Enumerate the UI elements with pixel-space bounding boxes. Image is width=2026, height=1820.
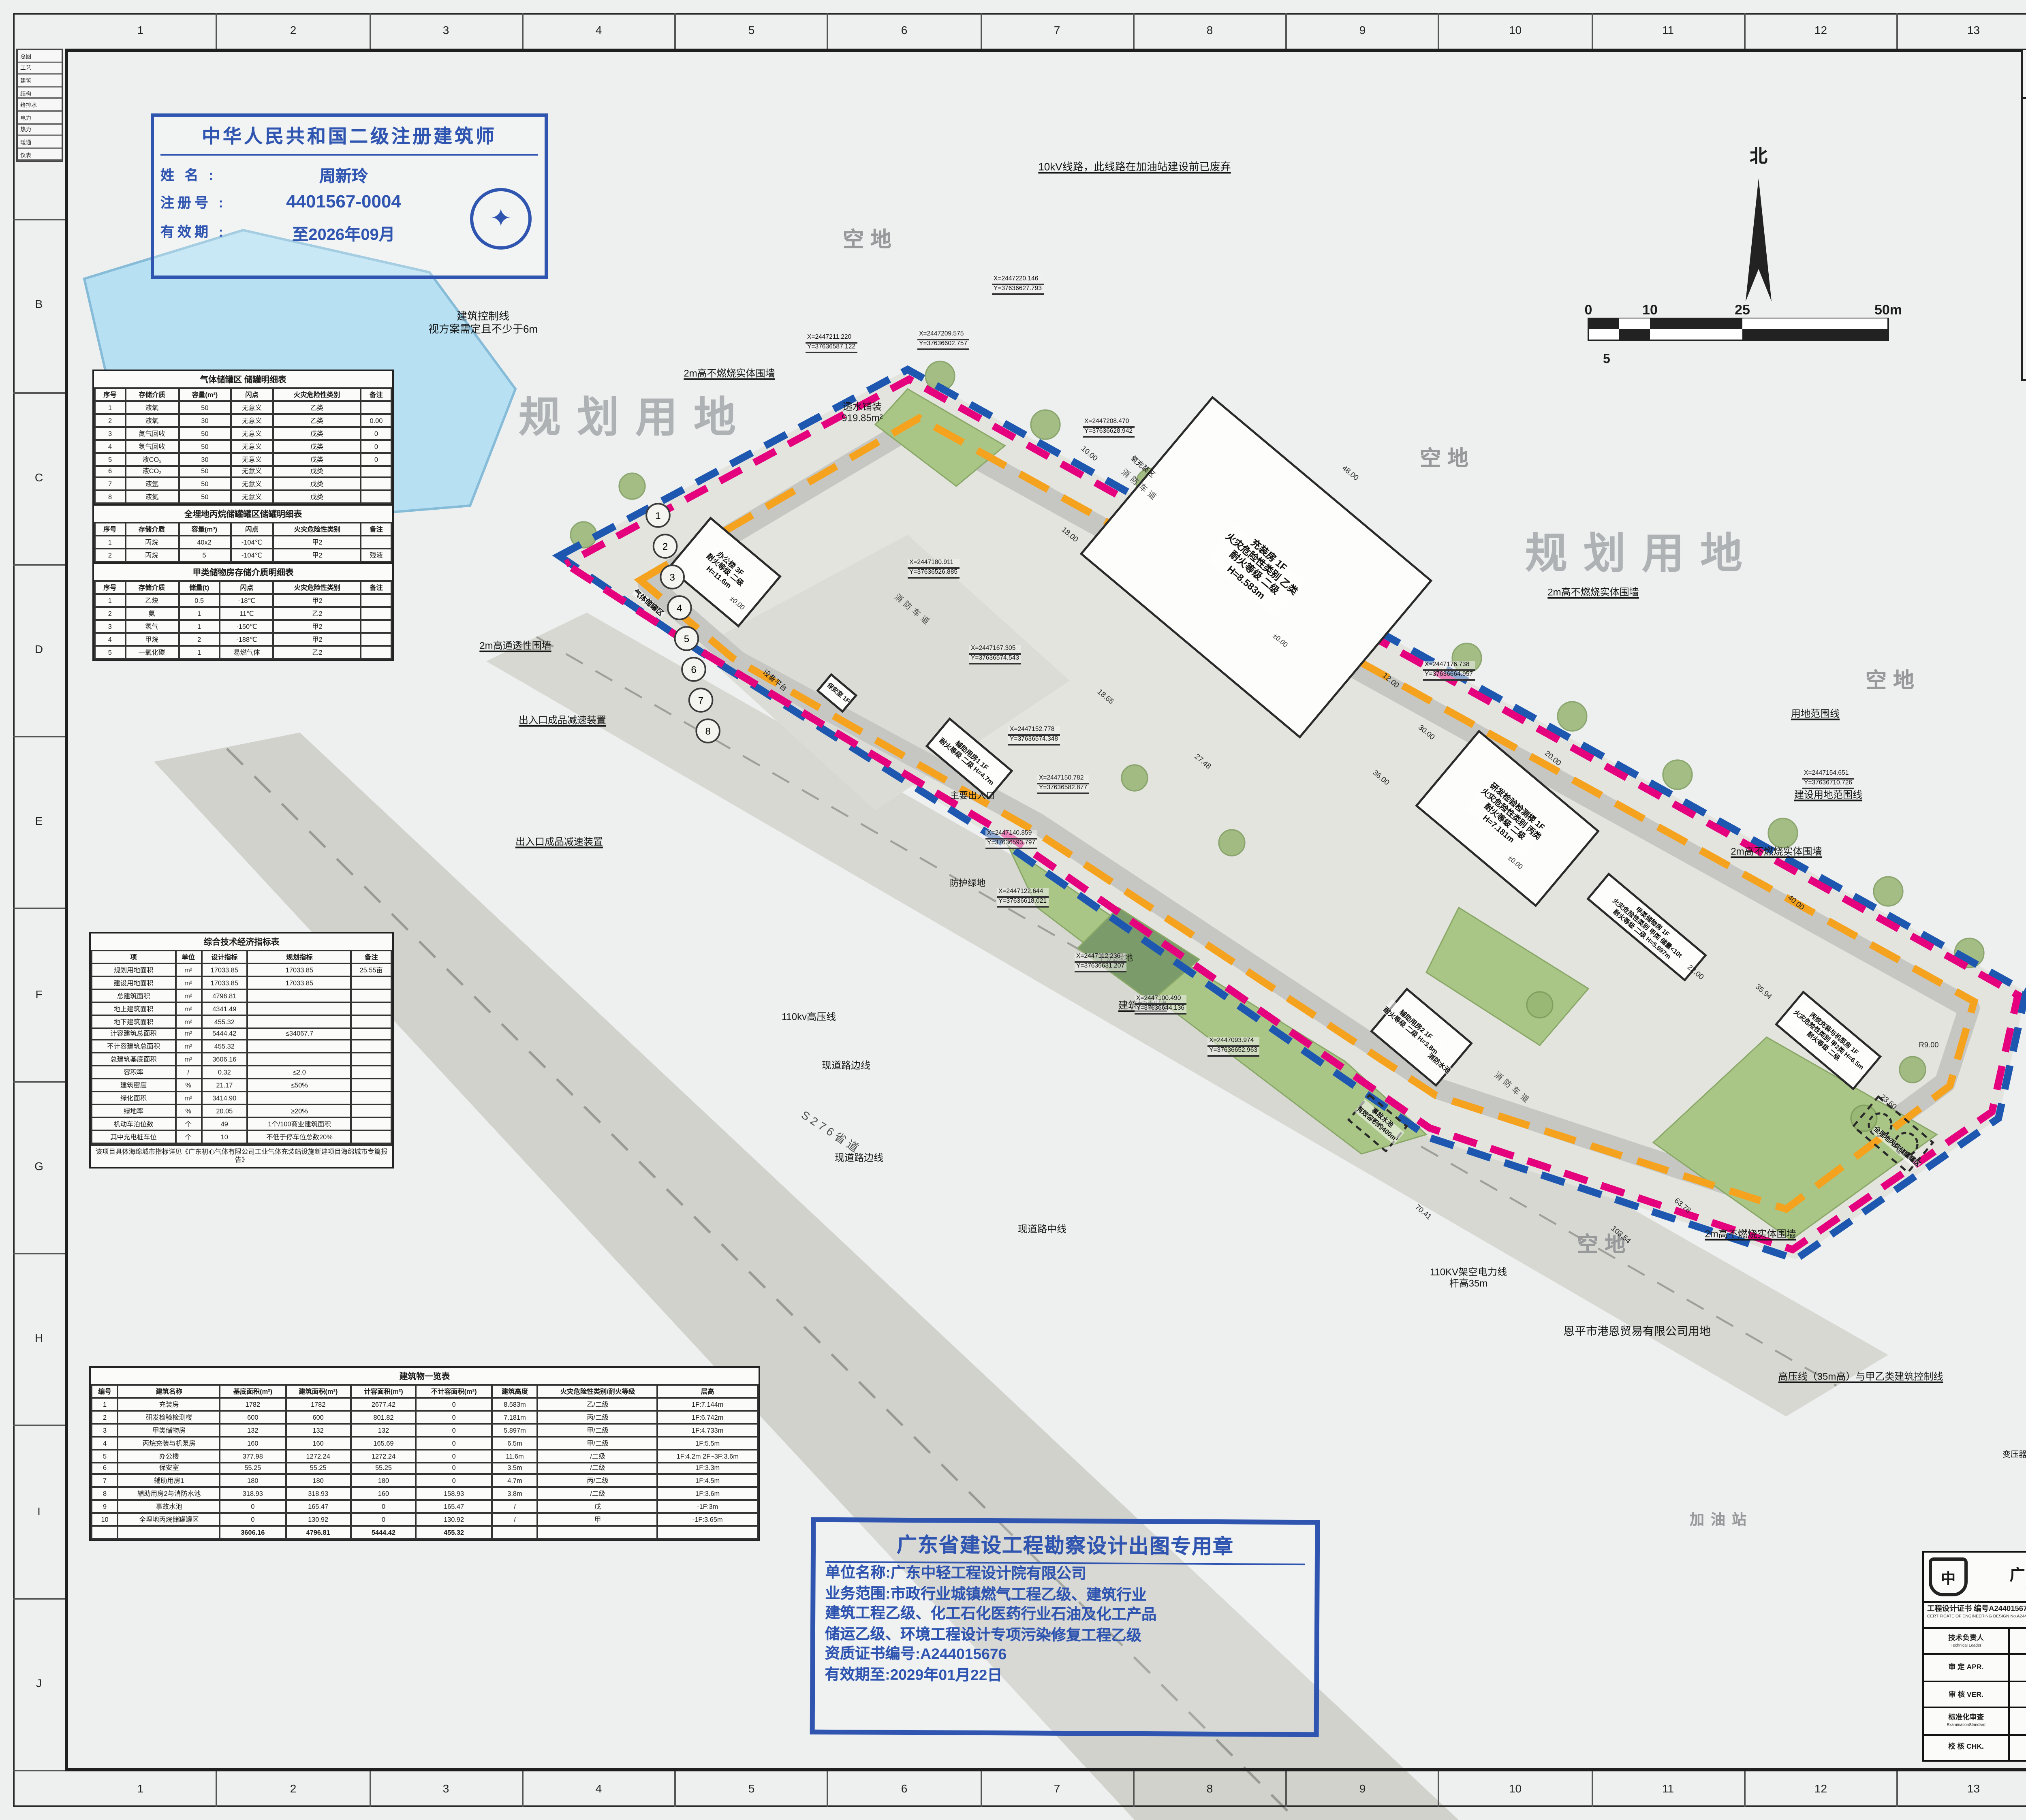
column-header: 火灾危险性类别 [273, 389, 361, 402]
table-cell: 10 [201, 1130, 248, 1143]
table-row: 2氨111℃乙2 [95, 607, 391, 620]
grid-column-label: 4 [523, 13, 676, 49]
column-header: 闪点 [231, 389, 273, 402]
table-cell: / [175, 1066, 201, 1079]
table-cell: 10 [92, 1513, 118, 1526]
table-cell [361, 645, 391, 658]
table-cell: 3606.16 [220, 1526, 285, 1539]
table-cell: m² [175, 1002, 201, 1015]
table-cell: 办公楼 [118, 1449, 220, 1462]
table-cell: 0 [220, 1500, 285, 1513]
table-cell: 132 [286, 1423, 351, 1436]
column-header: 计容面积(m²) [351, 1385, 416, 1398]
table-row: 6保安室55.2555.2555.2503.5m/二级1F:3.3m [92, 1462, 758, 1475]
table-cell: 17033.85 [248, 963, 351, 976]
table-cell: -150℃ [220, 619, 273, 632]
table-cell: 1F:4.733m [657, 1423, 758, 1436]
scale-tick: 25 [1735, 301, 1750, 318]
location-inset-map: 地块位置 地块位置规划三路规划二路S276省道规划一路安马陶瓷有限公司变电站煤气… [2021, 49, 2026, 381]
table-cell: 40x2 [178, 536, 230, 549]
table-cell: 1F:4.2m 2F~3F:3.6m [657, 1449, 758, 1462]
discipline-item: 结构 [18, 87, 62, 99]
table-cell: 8 [92, 1487, 118, 1500]
table-cell: 5 [95, 453, 125, 466]
table-cell: 乙/二级 [538, 1398, 658, 1411]
table-cell: 5.897m [492, 1423, 538, 1436]
role-label-en: ExaminationStandard [1947, 1724, 1985, 1728]
table-cell: 不低于停车位总数20% [248, 1130, 351, 1143]
class-a-storage-table: 甲类储物房存储介质明细表序号存储介质储量(t)闪点火灾危险性类别备注1乙炔0.5… [92, 562, 394, 660]
table-cell: 7 [92, 1475, 118, 1488]
table-header-row: 序号存储介质容量(m³)闪点火灾危险性类别备注 [95, 523, 391, 536]
grid-column-label: 4 [523, 1771, 676, 1807]
grid-column-label: 7 [981, 13, 1134, 49]
scale-bar: 0102550m 5 [1580, 301, 1904, 366]
role-label-en: Technical Leader [1951, 1644, 1981, 1649]
grid-column-label: 2 [218, 1771, 370, 1807]
table-cell: 50 [179, 427, 231, 440]
column-header: 建筑名称 [118, 1385, 220, 1398]
scale-tick: 0 [1585, 301, 1592, 318]
table-cell: 3414.90 [201, 1092, 248, 1104]
column-header: 不计容面积(m²) [416, 1385, 492, 1398]
grid-column-label: 12 [1745, 1771, 1898, 1807]
cert-cn: 工程设计证书 编号A244015676 [1927, 1604, 2026, 1614]
table-cell: 30 [179, 414, 231, 427]
table-cell: / [492, 1513, 538, 1526]
table-cell: 132 [220, 1423, 285, 1436]
table-cell: 318.93 [220, 1487, 285, 1500]
table-cell: 乙炔 [125, 594, 178, 607]
discipline-item: 电力 [18, 112, 62, 124]
table-cell: ≥20% [248, 1104, 351, 1117]
table-cell: 1 [95, 594, 125, 607]
table-cell: 1782 [220, 1398, 285, 1411]
table-row: 1丙烷40x2-104℃甲2 [95, 536, 391, 549]
table-cell: 个 [175, 1130, 201, 1143]
table-cell: m² [175, 989, 201, 1002]
table-cell: 1 [178, 619, 220, 632]
table-cell: 戊类 [273, 465, 361, 478]
table-cell: 0.00 [361, 414, 391, 427]
building-list-table: 建筑物一览表编号建筑名称基底面积(m²)建筑面积(m²)计容面积(m²)不计容面… [89, 1366, 760, 1541]
table-cell: 无意义 [231, 414, 273, 427]
table-cell: m² [175, 1053, 201, 1066]
role-name [2010, 1656, 2026, 1681]
table-row: 3氮气回收50无意义戊类0 [95, 427, 391, 440]
table-cell: 戊类 [273, 478, 361, 491]
grid-column-label: 8 [1134, 13, 1287, 49]
table-row: 地下建筑面积m²455.32 [92, 1015, 391, 1028]
company-logo: 中 [1929, 1557, 1968, 1596]
table-cell: 1 [92, 1398, 118, 1411]
table-cell [361, 607, 391, 620]
table-cell: 4 [95, 632, 125, 645]
table-cell: 地下建筑面积 [92, 1015, 175, 1028]
table-cell [351, 1053, 391, 1066]
grid-row-label: J [13, 1599, 65, 1771]
table-cell: 0 [220, 1513, 285, 1526]
table-cell: 50 [179, 465, 231, 478]
grid-row-label: B [13, 221, 65, 393]
table-cell: 氢气回收 [125, 440, 179, 453]
table-title: 气体储罐区 储罐明细表 [94, 371, 392, 388]
table-row: 10全埋地丙烷储罐罐区0130.920130.92/甲-1F:3.65m [92, 1513, 758, 1526]
table-cell: 建筑密度 [92, 1079, 175, 1092]
scale-bar-icon [1580, 318, 1904, 344]
table-cell: 丙/二级 [538, 1475, 658, 1488]
column-header: 规划指标 [248, 951, 351, 964]
table-cell: 180 [220, 1475, 285, 1488]
table-cell: 3.5m [492, 1462, 538, 1475]
architect-validity: 至2026年09月 [254, 220, 433, 244]
discipline-item: 暖通 [18, 137, 62, 149]
table-cell: ≤34067.7 [248, 1027, 351, 1040]
table-cell: 3 [92, 1423, 118, 1436]
site-plan-sheet: 12345678 规划用地规划用地空地空地空地空地加油站10kV线路，此线路在加… [0, 0, 2026, 1820]
table-cell: 无意义 [231, 427, 273, 440]
table-cell: 801.82 [351, 1411, 416, 1424]
grid-column-label: 1 [65, 13, 218, 49]
table-cell: 乙类 [273, 401, 361, 414]
table-cell: 0.32 [201, 1066, 248, 1079]
table-cell: 5 [92, 1449, 118, 1462]
table-total-row: 3606.164796.815444.42455.32 [92, 1526, 758, 1539]
table-cell: 7.181m [492, 1411, 538, 1424]
company-name-en: GUANGDONG ZHONGQING ENGINEERING DESIGN I… [1974, 1585, 2026, 1591]
table-cell: 11.6m [492, 1449, 538, 1462]
column-header: 闪点 [220, 581, 273, 594]
table-cell: 甲2 [274, 594, 361, 607]
column-header: 存储介质 [125, 389, 179, 402]
table-cell [492, 1526, 538, 1539]
location-map-title: 地块位置 [2023, 50, 2026, 99]
table-row: 1乙炔0.5-18℃甲2 [95, 594, 391, 607]
table-cell: m² [175, 963, 201, 976]
table-cell [248, 1015, 351, 1028]
table-cell: 无意义 [231, 401, 273, 414]
blue-stamp-line: 建筑工程乙级、化工石化医药行业石油及化工产品 [825, 1603, 1305, 1626]
table-cell: 455.32 [416, 1526, 492, 1539]
table-cell [351, 1027, 391, 1040]
table-cell: 160 [220, 1436, 285, 1449]
table-cell: 6.5m [492, 1436, 538, 1449]
table-cell: 50 [179, 401, 231, 414]
table-row: 地上建筑面积m²4341.49 [92, 1002, 391, 1015]
column-header: 备注 [361, 523, 391, 536]
table-cell: 机动车泊位数 [92, 1117, 175, 1130]
table-cell: 乙类 [273, 414, 361, 427]
table-cell: 计容建筑总面积 [92, 1027, 175, 1040]
table-cell: 其中充电桩车位 [92, 1130, 175, 1143]
table-cell: 4341.49 [201, 1002, 248, 1015]
table-cell: 1782 [286, 1398, 351, 1411]
table-cell: 4 [95, 440, 125, 453]
table-row: 7辅助用房118018018004.7m丙/二级1F:4.5m [92, 1475, 758, 1488]
table-cell: 4 [92, 1436, 118, 1449]
role-label-cn: 审 核 VER. [1949, 1690, 1983, 1699]
column-header: 编号 [92, 1385, 118, 1398]
table-row: 规划用地面积m²17033.8517033.8525.55亩 [92, 963, 391, 976]
table-cell: 160 [286, 1436, 351, 1449]
table-cell [248, 1040, 351, 1053]
table-cell: 455.32 [201, 1015, 248, 1028]
name-label: 姓 名 : [160, 165, 254, 184]
table-cell: 总建筑面积 [92, 989, 175, 1002]
table-cell [351, 1079, 391, 1092]
grid-column-label: 11 [1592, 1771, 1745, 1807]
table-cell: m² [175, 1015, 201, 1028]
titleblock-row: 审 核 VER.周新玲周新玲设 计 DES.庄朝建 [1924, 1682, 2026, 1709]
column-header: 建筑高度 [492, 1385, 538, 1398]
table-row: 建筑密度%21.17≤50% [92, 1079, 391, 1092]
discipline-item: 热力 [18, 124, 62, 136]
table-cell: 1个/100商业建筑面积 [248, 1117, 351, 1130]
table-cell: 130.92 [416, 1513, 492, 1526]
table-cell: 无意义 [231, 465, 273, 478]
data-table: 编号建筑名称基底面积(m²)建筑面积(m²)计容面积(m²)不计容面积(m²)建… [91, 1384, 759, 1540]
table-cell: 0 [416, 1475, 492, 1488]
table-cell [351, 976, 391, 989]
discipline-item: 工艺 [18, 62, 62, 75]
table-row: 机动车泊位数个491个/100商业建筑面积 [92, 1117, 391, 1130]
blue-stamp-line: 有效期至:2029年01月22日 [825, 1664, 1304, 1687]
table-cell [248, 1002, 351, 1015]
role-name: 周新玲周新玲 [2010, 1682, 2026, 1707]
table-cell: 规划用地面积 [92, 963, 175, 976]
table-cell: 1 [95, 401, 125, 414]
table-cell [351, 1066, 391, 1079]
scale-tick: 50m [1874, 301, 1902, 318]
table-row: 9事故水池0165.470165.47/戊-1F:3m [92, 1500, 758, 1513]
discipline-item: 建筑 [18, 75, 62, 87]
role-label: 校 核 CHK. [1924, 1735, 2010, 1760]
grid-row-label: F [13, 910, 65, 1082]
table-row: 2丙烷5-104℃甲2残液 [95, 549, 391, 562]
table-row: 3氢气1-150℃甲2 [95, 619, 391, 632]
table-row: 总建筑面积m²4796.81 [92, 989, 391, 1002]
table-cell [351, 1040, 391, 1053]
table-cell: 1F:3.3m [657, 1462, 758, 1475]
table-row: 4丙烷充装与机泵房160160165.6906.5m甲/二级1F:5.5m [92, 1436, 758, 1449]
grid-column-label: 1 [65, 1771, 218, 1807]
table-cell: 130.92 [286, 1513, 351, 1526]
table-cell: 个 [175, 1117, 201, 1130]
table-cell: 1F:3.6m [657, 1487, 758, 1500]
table-header-row: 编号建筑名称基底面积(m²)建筑面积(m²)计容面积(m²)不计容面积(m²)建… [92, 1385, 758, 1398]
column-header: 闪点 [230, 523, 274, 536]
table-row: 5办公楼377.981272.241272.24011.6m/二级1F:4.2m… [92, 1449, 758, 1462]
table-cell: 4.7m [492, 1475, 538, 1488]
table-cell: % [175, 1079, 201, 1092]
table-row: 3甲类储物房13213213205.897m甲/二级1F:4.733m [92, 1423, 758, 1436]
titleblock-row: 标准化审查ExaminationStandard制 图 DRW.庄朝建 [1924, 1709, 2026, 1735]
table-cell: 研发检验检测楼 [118, 1411, 220, 1424]
table-cell: 甲2 [274, 632, 361, 645]
table-row: 1液氧50无意义乙类 [95, 401, 391, 414]
table-cell [361, 536, 391, 549]
table-cell: 0 [351, 1513, 416, 1526]
table-cell: 充装房 [118, 1398, 220, 1411]
table-cell: 1272.24 [286, 1449, 351, 1462]
table-cell [351, 989, 391, 1002]
data-table: 序号存储介质储量(t)闪点火灾危险性类别备注1乙炔0.5-18℃甲22氨111℃… [94, 581, 392, 659]
data-table: 序号存储介质容量(m³)闪点火灾危险性类别备注1液氧50无意义乙类2液氧30无意… [94, 388, 392, 504]
table-cell: 5444.42 [201, 1027, 248, 1040]
grid-column-label: 6 [829, 13, 981, 49]
table-cell: 1 [95, 536, 125, 549]
table-note: 该项目具体海绵城市指标详见《广东初心气体有限公司工业气体充装站设施新建项目海绵城… [91, 1143, 392, 1167]
grid-row-label: D [13, 566, 65, 738]
table-cell [361, 478, 391, 491]
table-row: 5一氧化碳1易燃气体乙2 [95, 645, 391, 658]
table-cell: 氨 [125, 607, 178, 620]
table-row: 6液CO₂50无意义戊类 [95, 465, 391, 478]
table-title: 甲类储物房存储介质明细表 [94, 564, 392, 581]
table-cell: 3 [95, 427, 125, 440]
table-cell: -104℃ [230, 549, 274, 562]
table-cell: 600 [286, 1411, 351, 1424]
table-cell: 液氮 [125, 491, 179, 504]
table-cell: 132 [351, 1423, 416, 1436]
titleblock-row: 审 定 APR.专业负责人DisciplineResponsibleBy周新玲周… [1924, 1656, 2026, 1682]
titleblock-row: 技术负责人Technical Leader项目负责人Project Direct… [1924, 1629, 2026, 1656]
table-row: 绿化面积m²3414.90 [92, 1092, 391, 1104]
table-cell: 0 [416, 1462, 492, 1475]
ruler-left: ABCDEFGHIJ [13, 49, 65, 1771]
table-cell: 1F:6.742m [657, 1411, 758, 1424]
table-cell: 甲 [538, 1513, 658, 1526]
table-cell: 辅助用房1 [118, 1475, 220, 1488]
title-block: 中 广东中轻工程设计院有限公司 GUANGDONG ZHONGQING ENGI… [1922, 1551, 2026, 1762]
table-cell: 1F:5.5m [657, 1436, 758, 1449]
table-cell [351, 1092, 391, 1104]
table-cell [351, 1002, 391, 1015]
table-cell: /二级 [538, 1462, 658, 1475]
scanned-drawing-sheet: 12345678 规划用地规划用地空地空地空地空地加油站10kV线路，此线路在加… [0, 0, 2026, 1820]
table-cell [351, 1015, 391, 1028]
table-cell: 绿地率 [92, 1104, 175, 1117]
table-cell: 6 [95, 465, 125, 478]
table-cell: 5444.42 [351, 1526, 416, 1539]
table-cell: 不计容建筑总面积 [92, 1040, 175, 1053]
column-header: 火灾危险性类别/耐火等级 [538, 1385, 658, 1398]
table-row: 7液氩50无意义戊类 [95, 478, 391, 491]
table-cell: m² [175, 976, 201, 989]
architect-reg-no: 4401567-0004 [254, 194, 433, 213]
column-header: 备注 [351, 951, 391, 964]
grid-column-label: 11 [1592, 13, 1745, 49]
column-header: 序号 [95, 523, 125, 536]
table-row: 计容建筑总面积m²5444.42≤34067.7 [92, 1027, 391, 1040]
table-cell: 17033.85 [248, 976, 351, 989]
architect-registration-stamp: 中华人民共和国二级注册建筑师 姓 名 : 周新玲 注册号 : 4401567-0… [151, 113, 548, 279]
table-cell [538, 1526, 658, 1539]
table-cell: 6 [92, 1462, 118, 1475]
table-cell: 1272.24 [351, 1449, 416, 1462]
table-cell: 易燃气体 [220, 645, 273, 658]
table-header-row: 序号存储介质储量(t)闪点火灾危险性类别备注 [95, 581, 391, 594]
table-cell: 容积率 [92, 1066, 175, 1079]
table-cell: 55.25 [286, 1462, 351, 1475]
grid-column-label: 3 [370, 1771, 523, 1807]
table-title: 综合技术经济指标表 [91, 933, 392, 950]
reg-label: 注册号 : [160, 194, 254, 213]
table-header-row: 序号存储介质容量(m³)闪点火灾危险性类别备注 [95, 389, 391, 402]
table-cell: 0 [361, 440, 391, 453]
company-name-cn: 广东中轻工程设计院有限公司 [1974, 1562, 2026, 1585]
table-cell: 50 [179, 440, 231, 453]
table-cell: 8.583m [492, 1398, 538, 1411]
table-row: 4氢气回收50无意义戊类0 [95, 440, 391, 453]
table-cell: 4796.81 [201, 989, 248, 1002]
role-label-cn: 审 定 APR. [1949, 1663, 1984, 1673]
column-header: 层高 [657, 1385, 758, 1398]
table-cell: 0 [416, 1449, 492, 1462]
scale-tick-labels: 0102550m [1580, 301, 1904, 318]
table-cell: 甲/二级 [538, 1423, 658, 1436]
table-cell: 17033.85 [201, 976, 248, 989]
table-cell: -188℃ [220, 632, 273, 645]
table-cell: 戊类 [273, 440, 361, 453]
table-cell: /二级 [538, 1487, 658, 1500]
table-cell: 3.8m [492, 1487, 538, 1500]
column-header: 建筑面积(m²) [286, 1385, 351, 1398]
table-title: 建筑物一览表 [91, 1368, 759, 1384]
table-cell: m² [175, 1040, 201, 1053]
table-cell: 0 [416, 1423, 492, 1436]
table-row: 5液CO₂30无意义戊类0 [95, 453, 391, 466]
table-cell: 4796.81 [286, 1526, 351, 1539]
table-cell: 丙烷 [125, 536, 178, 549]
table-cell: 无意义 [231, 440, 273, 453]
table-row: 不计容建筑总面积m²455.32 [92, 1040, 391, 1053]
table-cell: 保安室 [118, 1462, 220, 1475]
column-header: 项 [92, 951, 175, 964]
propane-tank-table: 全埋地丙烷储罐罐区储罐明细表序号存储介质容量(m³)闪点火灾危险性类别备注1丙烷… [92, 504, 394, 564]
grid-row-label: I [13, 1427, 65, 1599]
stamp-title: 中华人民共和国二级注册建筑师 [160, 120, 538, 156]
table-cell: 5 [178, 549, 230, 562]
scale-tick: 10 [1642, 301, 1658, 318]
grid-column-label: 5 [676, 13, 829, 49]
table-cell: 30 [179, 453, 231, 466]
table-cell: 乙2 [274, 645, 361, 658]
table-cell: 1 [178, 645, 220, 658]
table-cell: m² [175, 1027, 201, 1040]
table-cell: 17033.85 [201, 963, 248, 976]
table-cell: 液氧 [125, 414, 179, 427]
table-cell: 戊类 [273, 491, 361, 504]
table-cell: 165.47 [416, 1500, 492, 1513]
grid-row-label: G [13, 1082, 65, 1254]
table-cell: 事故水池 [118, 1500, 220, 1513]
column-header: 设计指标 [201, 951, 248, 964]
table-cell: 11℃ [220, 607, 273, 620]
table-cell [248, 1053, 351, 1066]
table-cell: 0 [361, 453, 391, 466]
table-cell: 戊 [538, 1500, 658, 1513]
table-cell [118, 1526, 220, 1539]
table-row: 绿地率%20.05≥20% [92, 1104, 391, 1117]
cert-en: CERTIFICATE OF ENGINEERING DESIGN No.A24… [1927, 1614, 2026, 1619]
blue-stamp-line: 储运乙级、环境工程设计专项污染修复工程乙级 [825, 1623, 1305, 1646]
discipline-item: 仪表 [18, 149, 62, 161]
table-cell [361, 491, 391, 504]
grid-column-label: 3 [370, 13, 523, 49]
table-cell: -1F:3.65m [657, 1513, 758, 1526]
table-cell: 160 [351, 1487, 416, 1500]
